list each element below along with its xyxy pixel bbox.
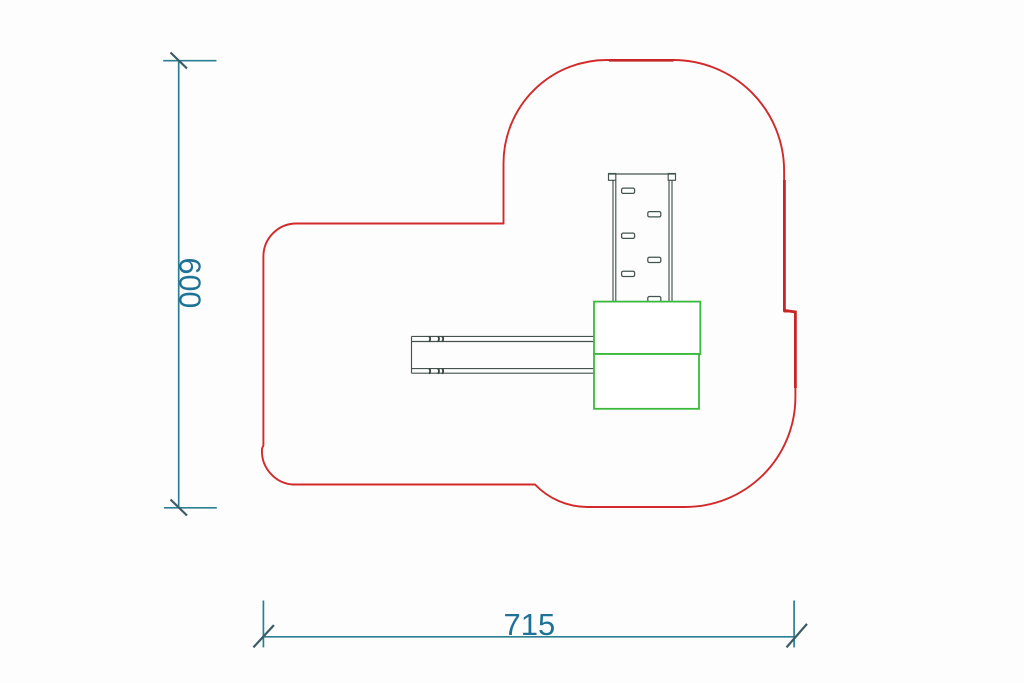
svg-text:600: 600 [173,258,207,309]
svg-text:715: 715 [504,607,556,642]
